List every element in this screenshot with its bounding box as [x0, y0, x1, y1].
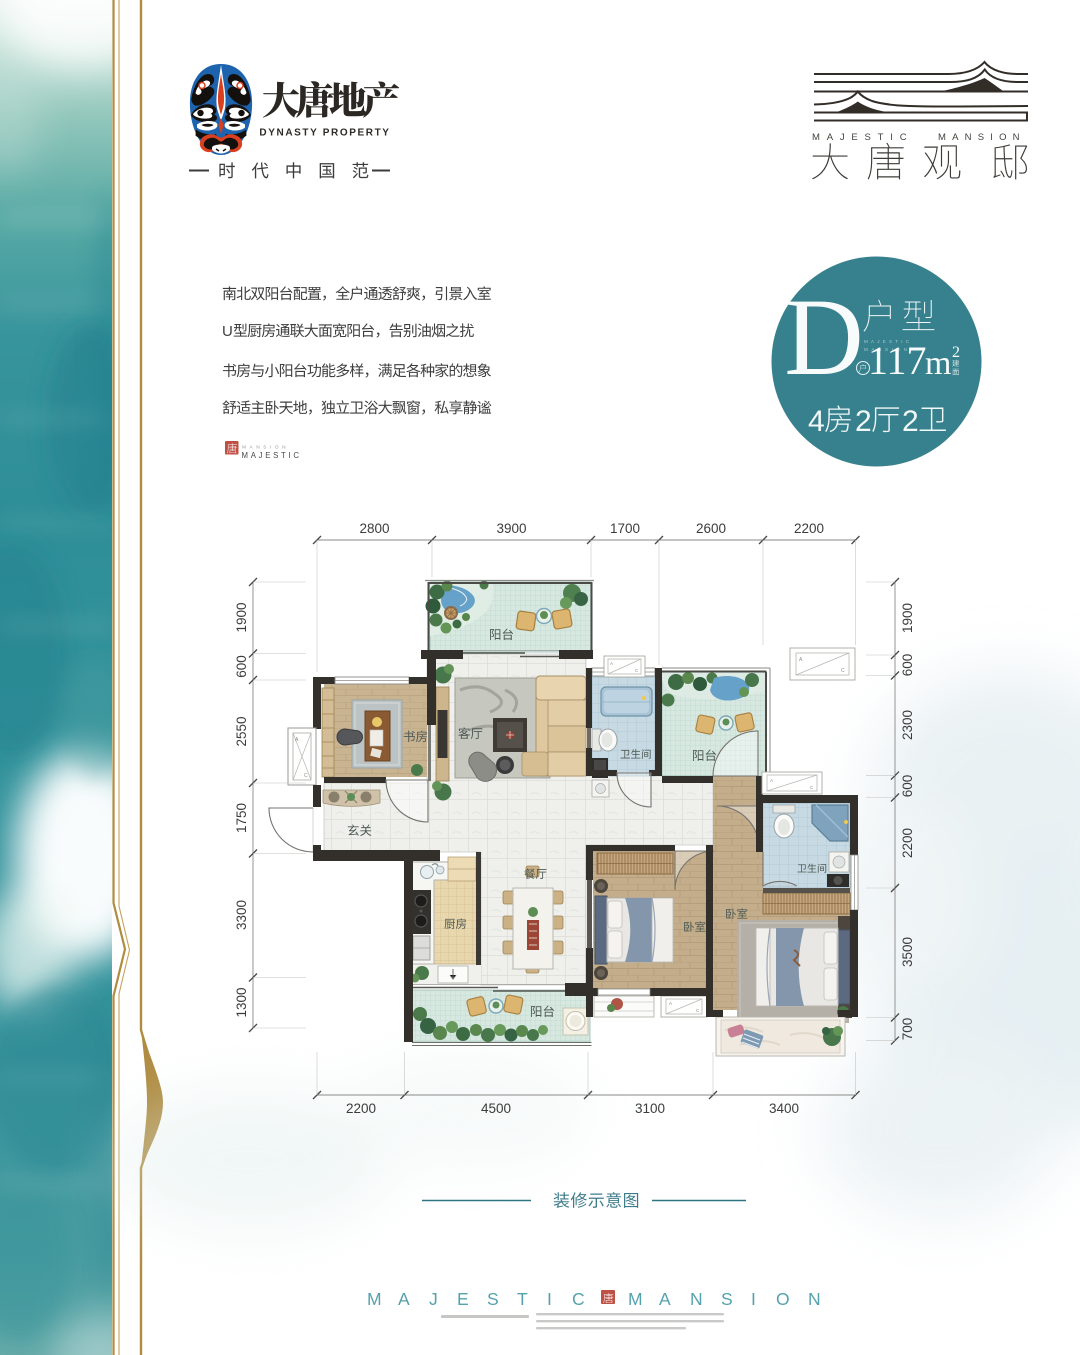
svg-text:A: A [398, 1289, 410, 1309]
svg-text:2200: 2200 [346, 1101, 376, 1116]
svg-text:S: S [721, 1289, 733, 1309]
svg-text:N: N [808, 1289, 821, 1309]
svg-text:4500: 4500 [481, 1101, 511, 1116]
svg-text:J: J [429, 1289, 438, 1309]
svg-text:E: E [457, 1289, 469, 1309]
svg-text:3300: 3300 [234, 900, 249, 930]
svg-text:MANSION: MANSION [938, 132, 1026, 143]
svg-text:M: M [628, 1289, 643, 1309]
svg-text:S: S [487, 1289, 499, 1309]
svg-text:2200: 2200 [794, 521, 824, 536]
svg-text:3100: 3100 [635, 1101, 665, 1116]
svg-text:A: A [659, 1289, 671, 1309]
svg-text:C: C [304, 773, 308, 779]
svg-text:M A N S I O N: M A N S I O N [242, 445, 287, 451]
svg-text:MAJESTIC: MAJESTIC [812, 132, 913, 143]
svg-text:2: 2 [902, 405, 919, 438]
svg-text:DYNASTY PROPERTY: DYNASTY PROPERTY [259, 128, 390, 139]
svg-text:m: m [925, 345, 951, 382]
svg-text:I: I [751, 1289, 756, 1309]
svg-text:600: 600 [234, 655, 249, 678]
svg-text:2300: 2300 [900, 710, 915, 740]
svg-text:117: 117 [868, 338, 927, 383]
svg-text:MAJESTIC: MAJESTIC [242, 451, 302, 460]
svg-text:4: 4 [808, 405, 825, 438]
svg-text:2550: 2550 [234, 716, 249, 746]
svg-text:T: T [517, 1289, 528, 1309]
svg-text:A: A [610, 661, 613, 666]
svg-text:600: 600 [900, 775, 915, 798]
svg-text:C: C [572, 1289, 585, 1309]
svg-text:3500: 3500 [900, 937, 915, 967]
svg-text:600: 600 [900, 654, 915, 677]
svg-text:2600: 2600 [696, 521, 726, 536]
svg-text:1700: 1700 [610, 521, 640, 536]
svg-text:2: 2 [855, 405, 872, 438]
svg-text:C: C [841, 668, 845, 674]
svg-text:I: I [547, 1289, 552, 1309]
svg-text:1750: 1750 [234, 803, 249, 833]
svg-text:D: D [784, 276, 863, 398]
svg-text:M: M [367, 1289, 382, 1309]
svg-text:3400: 3400 [769, 1101, 799, 1116]
svg-text:2800: 2800 [359, 521, 389, 536]
svg-text:2200: 2200 [900, 828, 915, 858]
svg-text:3900: 3900 [496, 521, 526, 536]
svg-text:700: 700 [900, 1018, 915, 1041]
svg-text:A: A [770, 778, 773, 783]
svg-text:2: 2 [952, 344, 960, 361]
svg-text:A: A [669, 1001, 672, 1006]
svg-text:U: U [222, 323, 233, 340]
svg-text:1900: 1900 [900, 603, 915, 633]
svg-text:O: O [776, 1289, 790, 1309]
svg-text:1900: 1900 [234, 602, 249, 632]
svg-text:N: N [690, 1289, 703, 1309]
svg-text:1300: 1300 [234, 987, 249, 1017]
